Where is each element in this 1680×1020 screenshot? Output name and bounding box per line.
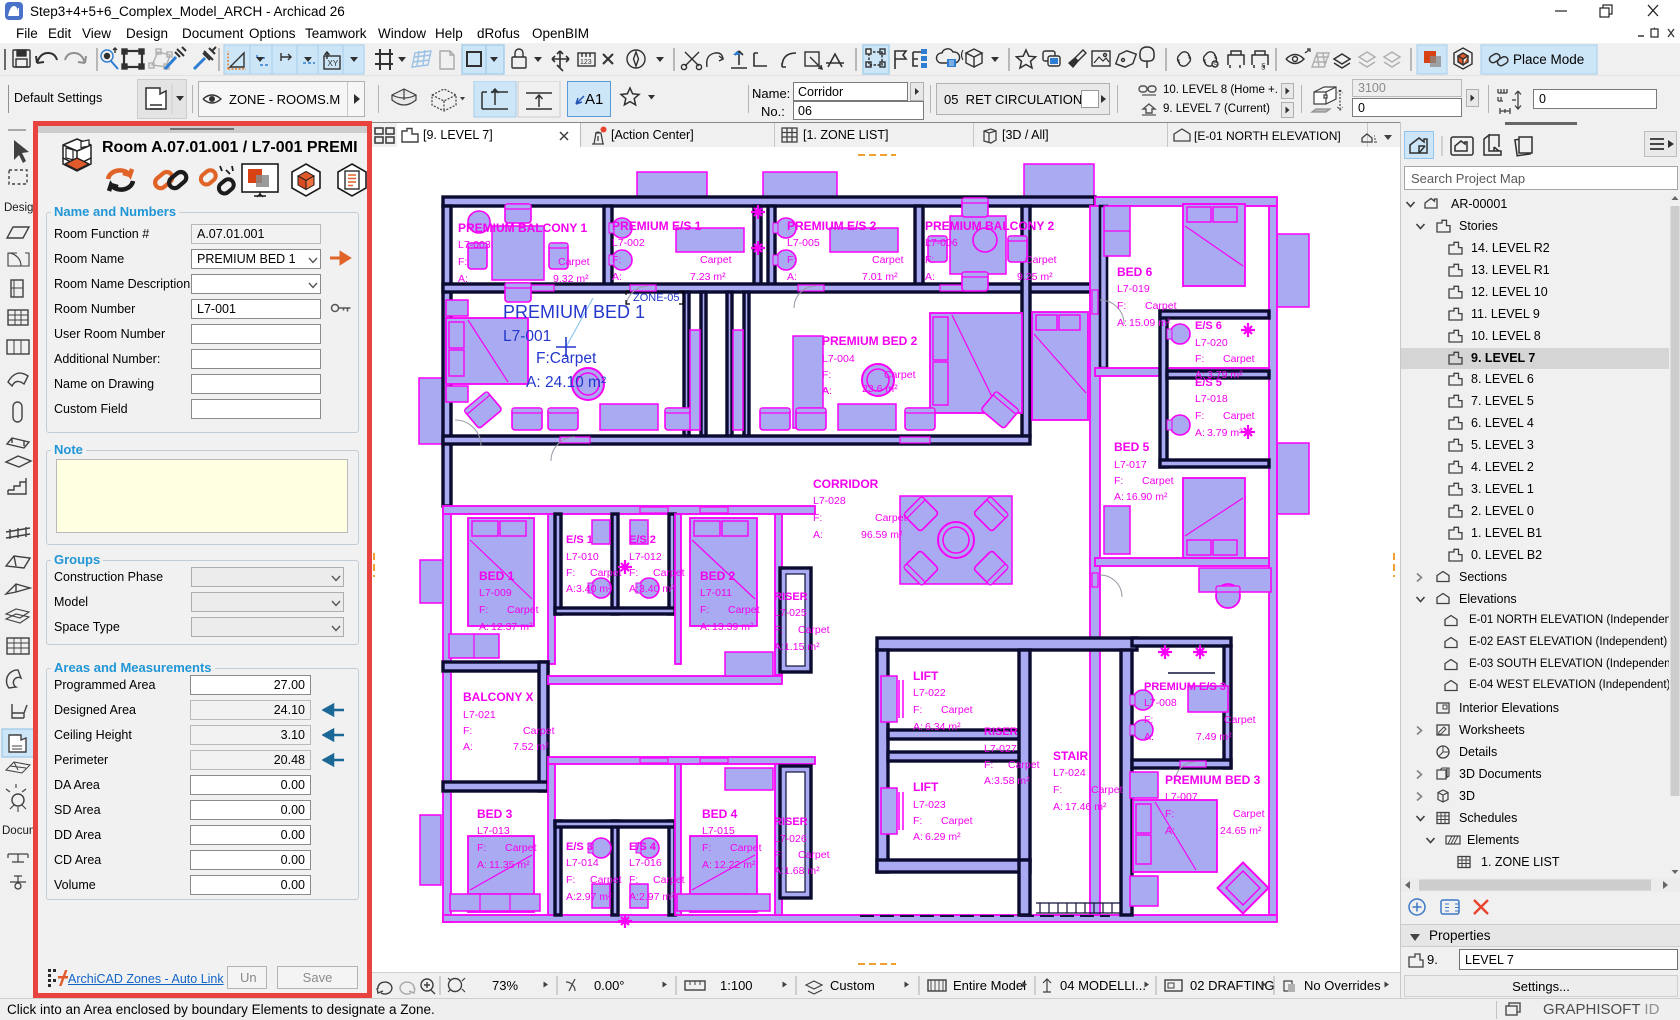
svg-text:9.32 m²: 9.32 m² bbox=[553, 273, 589, 285]
svg-text:PREMIUM E/S 2: PREMIUM E/S 2 bbox=[787, 219, 877, 233]
svg-text:Place Mode: Place Mode bbox=[1513, 52, 1584, 67]
svg-text:F:: F: bbox=[477, 842, 486, 854]
svg-text:A:: A: bbox=[913, 721, 923, 733]
svg-text:24.65 m²: 24.65 m² bbox=[1220, 825, 1262, 837]
svg-text:L7-028: L7-028 bbox=[813, 495, 846, 507]
svg-text:7.01 m²: 7.01 m² bbox=[862, 271, 898, 283]
svg-text:A:: A: bbox=[1053, 801, 1063, 813]
svg-text:L7-025: L7-025 bbox=[774, 607, 807, 619]
svg-text:LIFT: LIFT bbox=[913, 780, 939, 794]
svg-text:XY: XY bbox=[328, 59, 339, 68]
svg-text:PREMIUM E/S 1: PREMIUM E/S 1 bbox=[612, 219, 702, 233]
svg-text:L7-009: L7-009 bbox=[479, 587, 512, 599]
svg-text:PREMIUM E/S 3: PREMIUM E/S 3 bbox=[1144, 681, 1226, 693]
svg-text:A:: A: bbox=[913, 831, 923, 843]
svg-text:RISER: RISER bbox=[774, 591, 808, 603]
svg-text:L7-001: L7-001 bbox=[503, 328, 551, 345]
svg-text:Carpet: Carpet bbox=[558, 256, 590, 268]
svg-text:23.6 m²: 23.6 m² bbox=[862, 383, 898, 395]
svg-text:73%: 73% bbox=[492, 978, 518, 993]
svg-text:3.58 m²: 3.58 m² bbox=[994, 775, 1030, 787]
svg-text:L7-022: L7-022 bbox=[913, 687, 946, 699]
svg-text:L7-023: L7-023 bbox=[913, 799, 946, 811]
svg-text:L7-021: L7-021 bbox=[463, 709, 496, 721]
svg-text:BED 1: BED 1 bbox=[479, 569, 515, 583]
svg-text:A: 24.10 m²: A: 24.10 m² bbox=[526, 374, 606, 391]
svg-text:L7-007: L7-007 bbox=[1165, 791, 1198, 803]
svg-text:1.68 m²: 1.68 m² bbox=[784, 865, 820, 877]
svg-text:16.90 m²: 16.90 m² bbox=[1126, 491, 1168, 503]
svg-text:Carpet: Carpet bbox=[653, 567, 685, 579]
svg-text:PREMIUM BALCONY 2: PREMIUM BALCONY 2 bbox=[925, 219, 1054, 233]
svg-text:L7-013: L7-013 bbox=[477, 825, 510, 837]
svg-text:PREMIUM BALCONY 1: PREMIUM BALCONY 1 bbox=[458, 221, 587, 235]
svg-text:Carpet: Carpet bbox=[941, 815, 973, 827]
svg-text:LIFT: LIFT bbox=[913, 669, 939, 683]
svg-text:A:: A: bbox=[479, 621, 489, 633]
svg-text:3.79 m²: 3.79 m² bbox=[1207, 427, 1243, 439]
svg-text:L7-027: L7-027 bbox=[984, 743, 1017, 755]
svg-text:12.22 m²: 12.22 m² bbox=[714, 859, 756, 871]
svg-text:Carpet: Carpet bbox=[1091, 784, 1123, 796]
svg-text:A:: A: bbox=[1117, 317, 1127, 329]
svg-text:L7-004: L7-004 bbox=[822, 353, 855, 365]
svg-text:L7-024: L7-024 bbox=[1053, 767, 1086, 779]
svg-text:L7-006: L7-006 bbox=[925, 237, 958, 249]
svg-text:A:: A: bbox=[1144, 731, 1154, 743]
svg-text:F:: F: bbox=[458, 256, 467, 268]
svg-text:F:: F: bbox=[984, 759, 993, 771]
svg-text:L7-002: L7-002 bbox=[612, 237, 645, 249]
svg-text:Carpet: Carpet bbox=[590, 567, 622, 579]
svg-text:F:: F: bbox=[629, 567, 638, 579]
svg-text:F:: F: bbox=[1195, 410, 1204, 422]
svg-text:E/S 4: E/S 4 bbox=[629, 841, 657, 853]
svg-text:0.00°: 0.00° bbox=[594, 978, 625, 993]
svg-text:A:: A: bbox=[1165, 825, 1175, 837]
svg-text:Carpet: Carpet bbox=[505, 842, 537, 854]
svg-text:3.40 m²: 3.40 m² bbox=[576, 583, 612, 595]
svg-text:L7-016: L7-016 bbox=[629, 857, 662, 869]
svg-text:L7-020: L7-020 bbox=[1195, 337, 1228, 349]
svg-text:A:: A: bbox=[1195, 427, 1205, 439]
svg-text:A1: A1 bbox=[585, 91, 603, 108]
svg-text:123: 123 bbox=[580, 59, 592, 66]
svg-text:F:: F: bbox=[629, 874, 638, 886]
svg-text:Carpet: Carpet bbox=[700, 254, 732, 266]
svg-text:L7-005: L7-005 bbox=[787, 237, 820, 249]
svg-text:E/S 1: E/S 1 bbox=[566, 534, 593, 546]
svg-text:A:: A: bbox=[566, 891, 576, 903]
svg-text:F:: F: bbox=[566, 874, 575, 886]
svg-text:Carpet: Carpet bbox=[941, 704, 973, 716]
svg-text:A:: A: bbox=[774, 641, 784, 653]
svg-text:A:: A: bbox=[629, 583, 639, 595]
svg-text:BED 6: BED 6 bbox=[1117, 265, 1153, 279]
svg-text:3.40 m²: 3.40 m² bbox=[639, 583, 675, 595]
svg-text:No Overrides: No Overrides bbox=[1304, 978, 1381, 993]
svg-text:§: § bbox=[1261, 62, 1265, 71]
svg-text:A:: A: bbox=[1114, 491, 1124, 503]
svg-text:A:: A: bbox=[463, 741, 473, 753]
svg-text:F:: F: bbox=[774, 849, 783, 861]
svg-text:F:: F: bbox=[566, 567, 575, 579]
svg-text:F:Carpet: F:Carpet bbox=[536, 350, 597, 367]
svg-text:S: S bbox=[1213, 62, 1218, 69]
svg-text:Carpet: Carpet bbox=[1025, 254, 1057, 266]
svg-text:6.34 m²: 6.34 m² bbox=[925, 721, 961, 733]
svg-text:A:: A: bbox=[813, 529, 823, 541]
svg-text:Carpet: Carpet bbox=[1008, 759, 1040, 771]
svg-text:L7-014: L7-014 bbox=[566, 857, 599, 869]
svg-text:7.49 m²: 7.49 m² bbox=[1196, 731, 1232, 743]
svg-text:RISER: RISER bbox=[774, 816, 808, 828]
svg-text:Custom: Custom bbox=[830, 978, 875, 993]
svg-text:A:: A: bbox=[612, 271, 622, 283]
svg-text:Carpet: Carpet bbox=[875, 512, 907, 524]
svg-text:L7-012: L7-012 bbox=[629, 551, 662, 563]
svg-text:BED 4: BED 4 bbox=[702, 807, 738, 821]
svg-text:L7-018: L7-018 bbox=[1195, 393, 1228, 405]
svg-text:L7-011: L7-011 bbox=[700, 587, 732, 599]
svg-text:A:: A: bbox=[566, 583, 576, 595]
svg-text:Carpet: Carpet bbox=[1145, 300, 1177, 312]
svg-text:L7-017: L7-017 bbox=[1114, 459, 1147, 471]
svg-text:F:: F: bbox=[822, 369, 831, 381]
svg-text:F:: F: bbox=[1117, 300, 1126, 312]
svg-text:Carpet: Carpet bbox=[507, 604, 539, 616]
svg-text:F:: F: bbox=[913, 815, 922, 827]
svg-text:Carpet: Carpet bbox=[1223, 353, 1255, 365]
svg-text:2.97 m²: 2.97 m² bbox=[639, 891, 675, 903]
svg-text:96.59 m²: 96.59 m² bbox=[861, 529, 903, 541]
svg-text:BED 5: BED 5 bbox=[1114, 440, 1150, 454]
svg-text:Carpet: Carpet bbox=[653, 874, 685, 886]
svg-text:17.46 m²: 17.46 m² bbox=[1065, 801, 1107, 813]
svg-text:A:: A: bbox=[702, 859, 712, 871]
svg-text:F:: F: bbox=[813, 512, 822, 524]
svg-text:E/S 5: E/S 5 bbox=[1195, 377, 1222, 389]
svg-text:A:: A: bbox=[458, 273, 468, 285]
svg-text:A:: A: bbox=[774, 865, 784, 877]
svg-text:Carpet: Carpet bbox=[523, 725, 555, 737]
svg-text:04 MODELLI...: 04 MODELLI... bbox=[1060, 978, 1146, 993]
svg-text:F:: F: bbox=[925, 254, 934, 266]
svg-text:A:: A: bbox=[822, 385, 832, 397]
svg-text:Carpet: Carpet bbox=[884, 369, 916, 381]
svg-text:BED 3: BED 3 bbox=[477, 807, 513, 821]
svg-text:9.25 m²: 9.25 m² bbox=[1017, 271, 1053, 283]
svg-text:12.37 m²: 12.37 m² bbox=[491, 621, 533, 633]
svg-text:BALCONY X: BALCONY X bbox=[463, 690, 533, 704]
svg-text:A:: A: bbox=[925, 271, 935, 283]
svg-text:E/S 2: E/S 2 bbox=[629, 534, 656, 546]
svg-text:A:: A: bbox=[629, 891, 639, 903]
svg-text:A:: A: bbox=[984, 775, 994, 787]
svg-text:Carpet: Carpet bbox=[1142, 475, 1174, 487]
svg-text:A:: A: bbox=[787, 271, 797, 283]
svg-text:STAIR: STAIR bbox=[1053, 749, 1088, 763]
svg-text:PREMIUM BED 2: PREMIUM BED 2 bbox=[822, 334, 918, 348]
svg-text:F:: F: bbox=[1114, 475, 1123, 487]
svg-text:7.52 m²: 7.52 m² bbox=[513, 741, 549, 753]
svg-text:F:: F: bbox=[913, 704, 922, 716]
svg-text:F:: F: bbox=[1053, 784, 1062, 796]
svg-text:L7-010: L7-010 bbox=[566, 551, 599, 563]
svg-text:A:: A: bbox=[700, 621, 710, 633]
svg-text:E/S 6: E/S 6 bbox=[1195, 320, 1222, 332]
svg-text:F:: F: bbox=[787, 254, 796, 266]
svg-text:F:: F: bbox=[479, 604, 488, 616]
svg-text:L7-003: L7-003 bbox=[458, 239, 491, 251]
svg-text:15.09 m²: 15.09 m² bbox=[1129, 317, 1171, 329]
svg-text:L7-015: L7-015 bbox=[702, 825, 735, 837]
svg-text:Docum: Docum bbox=[2, 825, 37, 837]
svg-text:Carpet: Carpet bbox=[730, 842, 762, 854]
svg-text:PREMIUM BED 1: PREMIUM BED 1 bbox=[503, 302, 645, 322]
svg-text:BED 2: BED 2 bbox=[700, 569, 736, 583]
svg-text:Carpet: Carpet bbox=[590, 874, 622, 886]
svg-text:1:100: 1:100 bbox=[720, 978, 753, 993]
svg-text:Carpet: Carpet bbox=[798, 849, 830, 861]
svg-text:2.97 m²: 2.97 m² bbox=[576, 891, 612, 903]
svg-text:F:: F: bbox=[612, 254, 621, 266]
svg-text:L7-008: L7-008 bbox=[1144, 697, 1177, 709]
svg-text:F:: F: bbox=[463, 725, 472, 737]
svg-text:F:: F: bbox=[700, 604, 709, 616]
svg-text:CORRIDOR: CORRIDOR bbox=[813, 477, 879, 491]
svg-text:Entire Model: Entire Model bbox=[953, 978, 1026, 993]
svg-text:13.39 m²: 13.39 m² bbox=[712, 621, 754, 633]
svg-text:L7-019: L7-019 bbox=[1117, 283, 1150, 295]
svg-text:7.23 m²: 7.23 m² bbox=[690, 271, 726, 283]
svg-text:F:: F: bbox=[774, 624, 783, 636]
svg-text:1.15 m²: 1.15 m² bbox=[784, 641, 820, 653]
svg-text:RISER: RISER bbox=[984, 726, 1018, 738]
svg-text:Carpet: Carpet bbox=[872, 254, 904, 266]
svg-text:Carpet: Carpet bbox=[1223, 410, 1255, 422]
svg-text:E/S 3: E/S 3 bbox=[566, 841, 593, 853]
svg-text:Carpet: Carpet bbox=[728, 604, 760, 616]
svg-text:Carpet: Carpet bbox=[1224, 714, 1256, 726]
svg-text:11.35 m²: 11.35 m² bbox=[489, 859, 530, 871]
svg-text:PREMIUM BED 3: PREMIUM BED 3 bbox=[1165, 773, 1261, 787]
svg-text:Carpet: Carpet bbox=[798, 624, 830, 636]
svg-text:F:: F: bbox=[1165, 808, 1174, 820]
svg-text:Carpet: Carpet bbox=[1233, 808, 1265, 820]
svg-text:L7-026: L7-026 bbox=[774, 833, 807, 845]
svg-text:A:: A: bbox=[477, 859, 487, 871]
svg-text:F:: F: bbox=[1144, 714, 1153, 726]
svg-text:F:: F: bbox=[1195, 353, 1204, 365]
svg-text:F:: F: bbox=[702, 842, 711, 854]
svg-text:6.29 m²: 6.29 m² bbox=[925, 831, 961, 843]
